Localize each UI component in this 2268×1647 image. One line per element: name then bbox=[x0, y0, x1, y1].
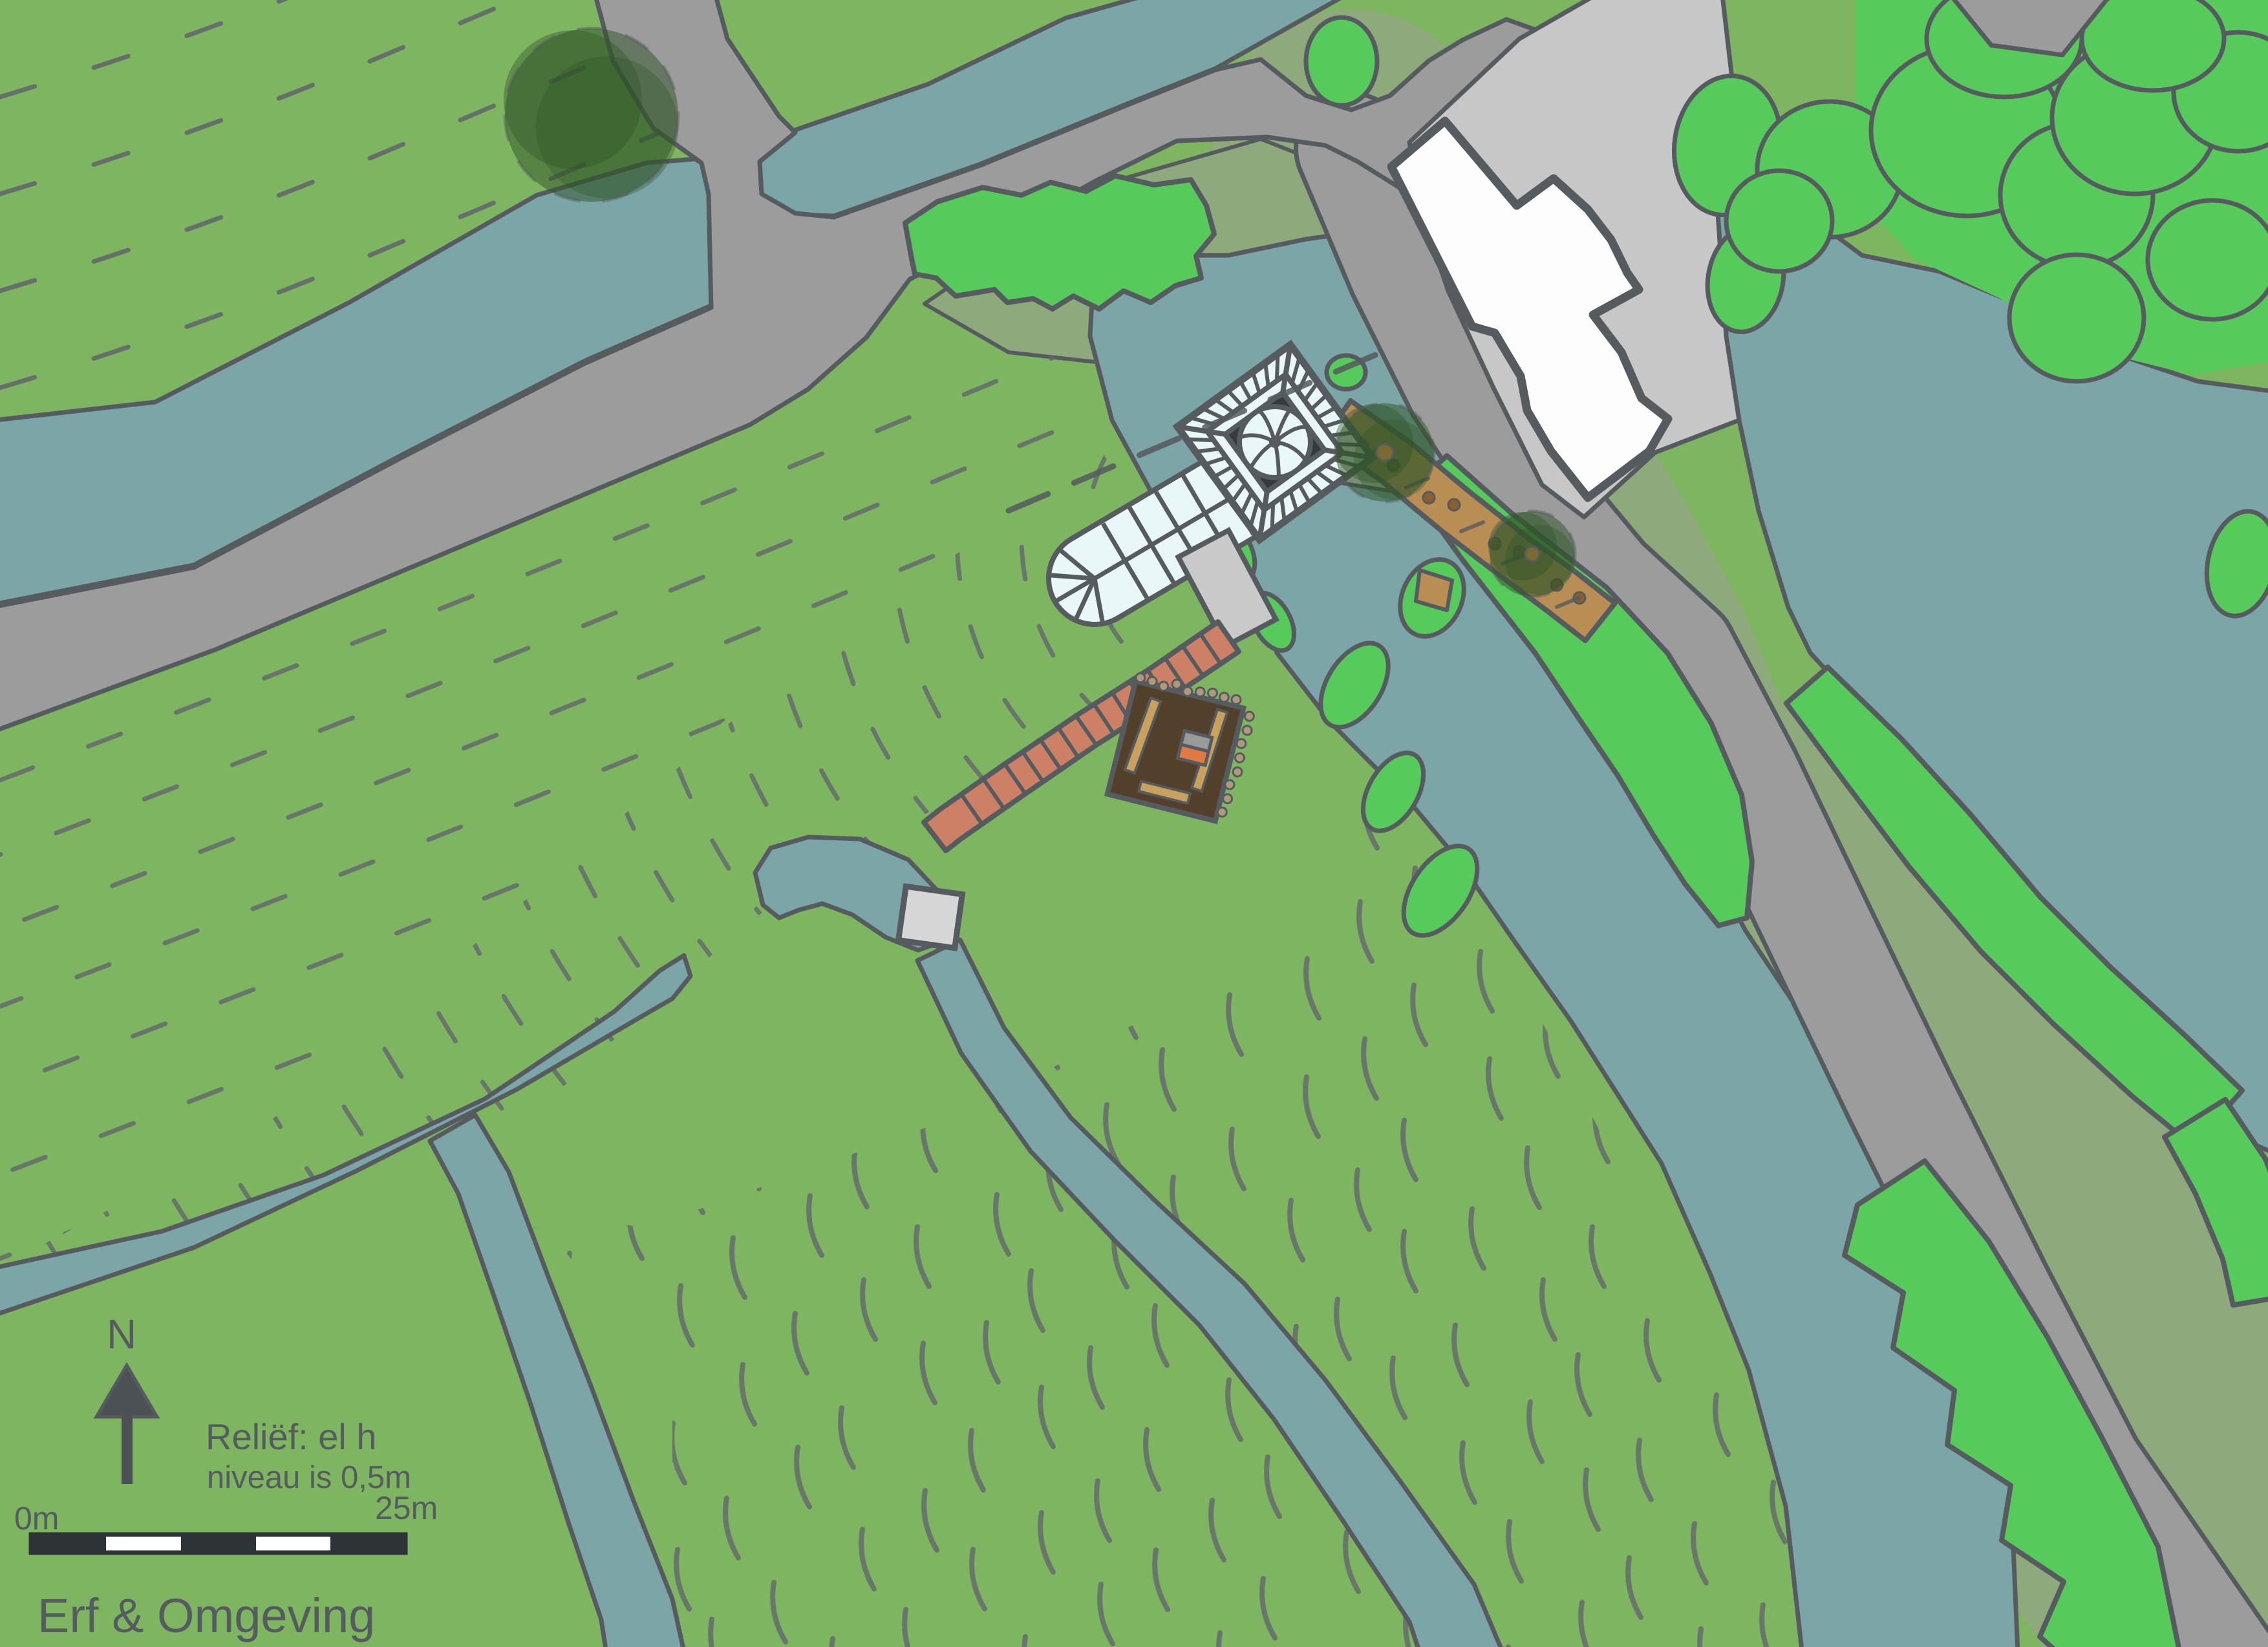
svg-text:Erf & Omgeving: Erf & Omgeving bbox=[37, 1589, 375, 1642]
svg-text:Reliëf: el h: Reliëf: el h bbox=[206, 1416, 377, 1457]
svg-text:25m: 25m bbox=[375, 1490, 438, 1526]
svg-text:0m: 0m bbox=[14, 1500, 59, 1536]
svg-text:N: N bbox=[107, 1311, 136, 1357]
